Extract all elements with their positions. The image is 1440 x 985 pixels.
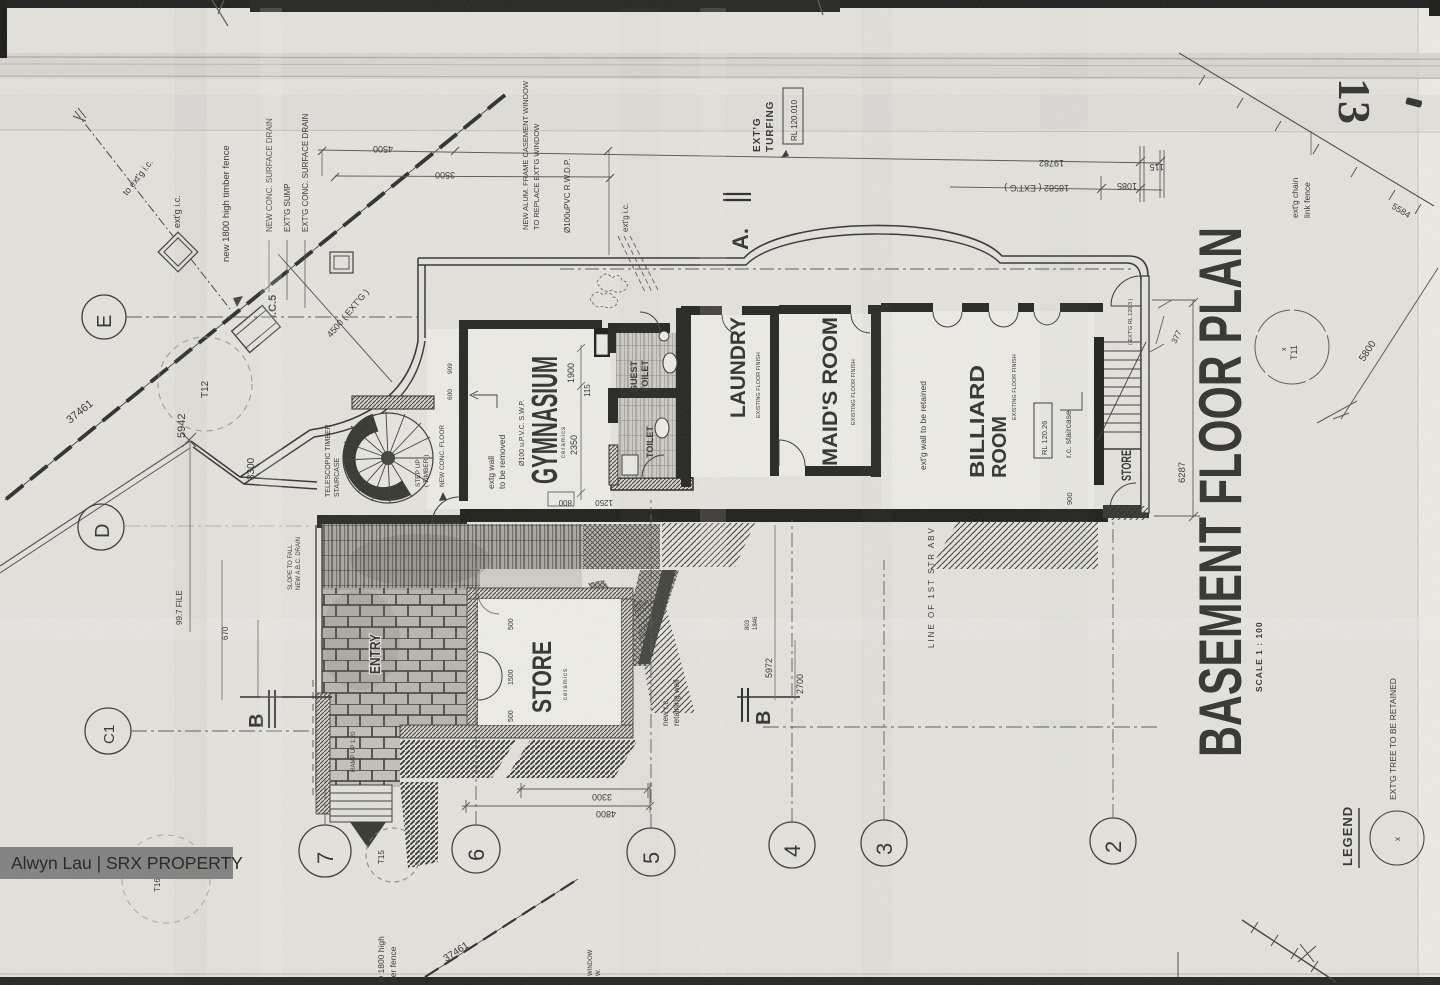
svg-text:Alwyn Lau | SRX PROPERTY: Alwyn Lau | SRX PROPERTY [11, 853, 243, 873]
